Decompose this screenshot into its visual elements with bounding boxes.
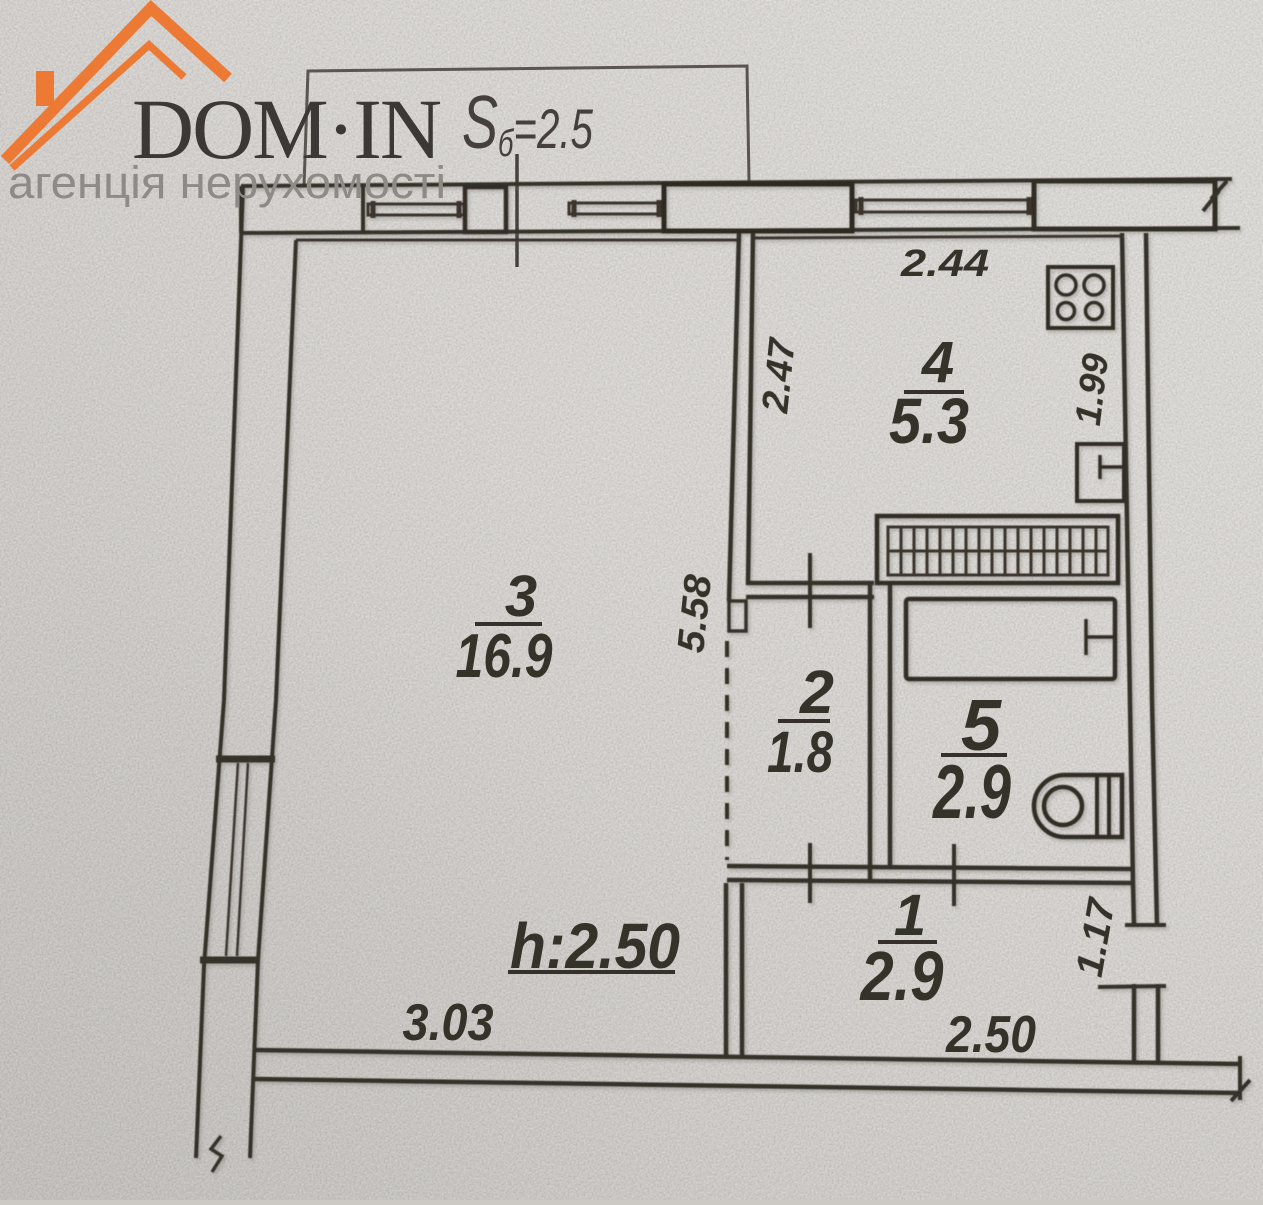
- svg-text:2.47: 2.47: [754, 334, 803, 415]
- svg-text:1.8: 1.8: [767, 720, 834, 785]
- svg-text:5.58: 5.58: [670, 572, 720, 655]
- svg-text:16.9: 16.9: [456, 622, 553, 691]
- svg-text:1.99: 1.99: [1067, 351, 1116, 427]
- svg-text:2.50: 2.50: [945, 1006, 1036, 1064]
- svg-text:агенція нерухомості: агенція нерухомості: [8, 157, 446, 208]
- svg-text:2.9: 2.9: [932, 750, 1011, 835]
- svg-text:5.3: 5.3: [889, 385, 969, 457]
- svg-text:2: 2: [799, 658, 834, 726]
- svg-text:2.9: 2.9: [859, 937, 944, 1015]
- svg-text:3: 3: [505, 564, 537, 629]
- svg-text:3.03: 3.03: [403, 994, 494, 1052]
- svg-text:2.44: 2.44: [900, 243, 989, 285]
